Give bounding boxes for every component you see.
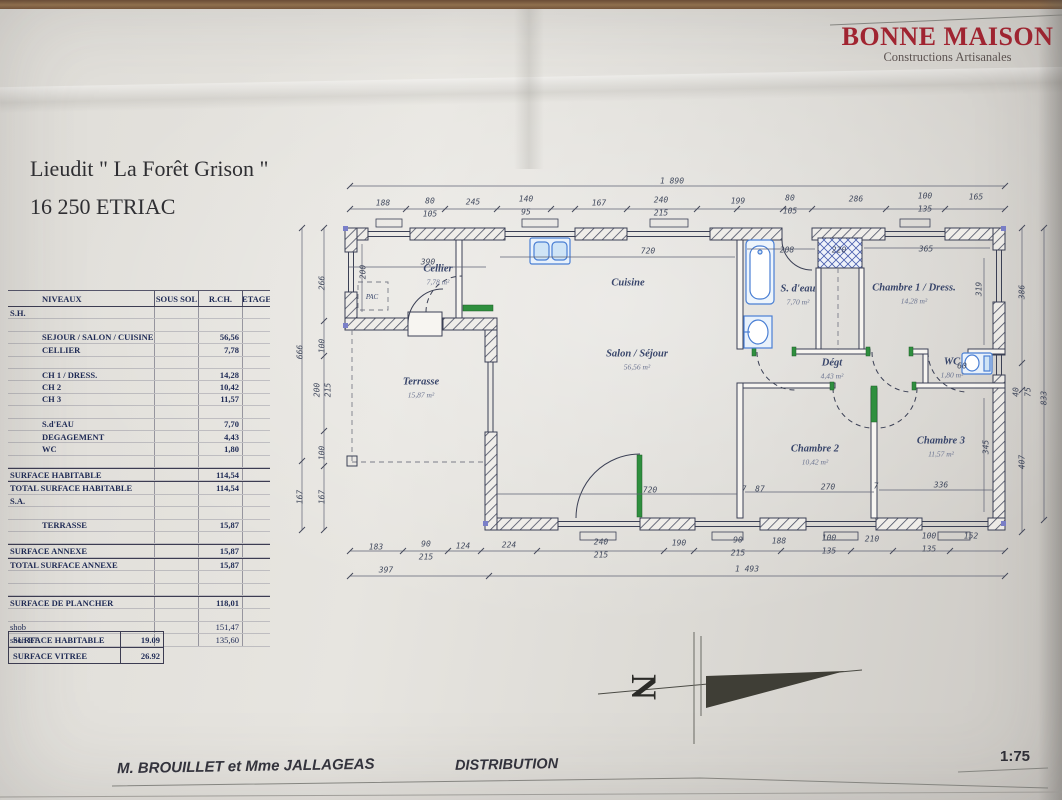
north-arrow-triangle: [706, 671, 845, 708]
kitchen-sink-icon: [530, 238, 570, 264]
north-label: N: [624, 674, 664, 700]
north-arrow: N: [598, 632, 862, 744]
photographed-plan-sheet: BONNE MAISON Constructions Artisanales L…: [0, 0, 1062, 800]
door-jambs-green: [463, 305, 916, 517]
outer-walls: [345, 228, 1005, 530]
washbasin-icon: [744, 316, 772, 348]
drawing-scale: 1:75: [1000, 748, 1030, 765]
floor-plan-drawing: N: [0, 0, 1062, 800]
toilet-icon: [962, 353, 992, 374]
corner-markers: [343, 226, 1006, 526]
duct-shaft: [818, 238, 862, 268]
windows-glazing: [349, 232, 1002, 527]
interior-partitions: [456, 240, 1005, 518]
drawing-title: DISTRIBUTION: [455, 756, 558, 774]
sheet-rule-lines: [0, 15, 1062, 797]
bathtub-icon: [746, 240, 774, 304]
